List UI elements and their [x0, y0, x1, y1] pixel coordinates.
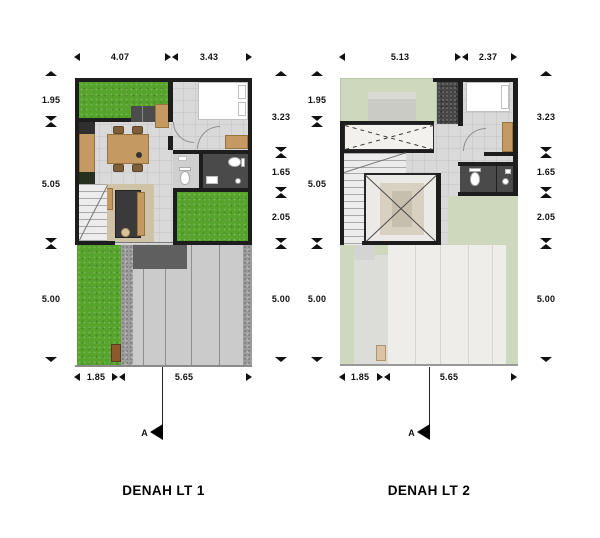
lt2-void-strip — [344, 124, 434, 150]
section-line — [429, 367, 430, 432]
plan1-title: DENAH LT 1 — [75, 483, 252, 498]
lt1-fridge — [79, 122, 95, 134]
lt1-dining-chair-3 — [113, 164, 124, 172]
lt1-wall-top — [75, 78, 252, 82]
dim-arrow-down-icon — [45, 357, 57, 362]
lt2-partition-wall — [458, 78, 463, 126]
dim-tick-icon — [540, 187, 552, 198]
dim-label: 5.05 — [36, 179, 66, 189]
lt1-wc-toilet — [180, 171, 190, 185]
lt1-yard-edge — [75, 365, 252, 367]
dim-label: 5.65 — [126, 372, 242, 382]
section-arrow-icon — [417, 424, 430, 440]
dim-tick-icon — [540, 238, 552, 249]
dim-arrow-up-icon — [540, 71, 552, 76]
lt2-ghost-pillow — [368, 92, 416, 99]
lt1-entry-mat — [131, 106, 155, 122]
dim-label: 3.23 — [531, 112, 561, 122]
dim-label: 1.95 — [36, 95, 66, 105]
lt1-bath-toilet-tank — [241, 158, 245, 167]
dim-label: 3.43 — [178, 52, 240, 62]
lt2-roof-joint — [492, 245, 493, 366]
dim-tick-icon — [311, 116, 323, 127]
dim-label: 5.13 — [350, 52, 450, 62]
lt2-gravel-wall — [437, 78, 458, 124]
lt2-roof-joint — [440, 245, 441, 366]
lt2-bath-toilet — [470, 172, 480, 186]
lt1-driveway-joint — [191, 245, 192, 365]
dim-arrow-up-icon — [275, 71, 287, 76]
lt1-dining-chair-4 — [132, 164, 143, 172]
lt1-driveway-joint — [219, 245, 220, 365]
floor-plan-sheet: 4.07 3.43 1.85 5.65 1.95 5.05 5.00 3.23 … — [0, 0, 600, 538]
lt2-wall-top — [433, 78, 518, 82]
dim-arrow-left-icon — [339, 53, 345, 61]
lt1-dining-chair-1 — [113, 126, 124, 134]
floor-plan-lt2 — [340, 78, 518, 367]
dim-arrow-down-icon — [311, 357, 323, 362]
dim-label: 2.05 — [266, 212, 296, 222]
lt2-bed-pillow — [501, 85, 509, 109]
dim-label: 1.65 — [531, 167, 561, 177]
dim-arrow-up-icon — [311, 71, 323, 76]
dim-label: 1.85 — [78, 372, 114, 382]
dim-tick-icon — [275, 187, 287, 198]
lt2-bath-divider — [496, 166, 497, 192]
dim-arrow-right-icon — [246, 53, 252, 61]
lt1-planter — [111, 344, 121, 362]
dim-label: 5.00 — [266, 294, 296, 304]
dim-tick-icon — [540, 147, 552, 158]
lt2-void-wall-right — [436, 173, 441, 246]
lt2-void-living — [364, 173, 438, 243]
dim-label: 2.05 — [531, 212, 561, 222]
lt1-dining-chair-2 — [132, 126, 143, 134]
dim-arrow-right-icon — [246, 373, 252, 381]
lt1-wc-sink — [178, 156, 187, 161]
dim-split-icon — [377, 373, 390, 381]
lt2-bath-shelf — [505, 169, 511, 174]
dim-label: 4.07 — [80, 52, 160, 62]
lt2-bath-drain — [502, 178, 509, 185]
dim-label: 1.95 — [302, 95, 332, 105]
lt2-roof-panels — [388, 245, 506, 366]
lt2-yard-green-right — [506, 245, 518, 366]
dim-arrow-right-icon — [511, 53, 517, 61]
section-arrow-icon — [150, 424, 163, 440]
lt1-pouf — [121, 228, 130, 237]
dim-label: 5.00 — [302, 294, 332, 304]
lt1-wardrobe — [225, 135, 248, 149]
lt2-stair-flight — [344, 173, 364, 245]
dim-label: 5.05 — [302, 179, 332, 189]
lt1-entry-door-split — [142, 106, 143, 122]
lt1-bed-pillow-2 — [238, 102, 246, 116]
dim-split-icon — [165, 53, 178, 61]
dim-label: 1.65 — [266, 167, 296, 177]
dim-arrow-up-icon — [45, 71, 57, 76]
lt1-porch — [133, 245, 187, 269]
lt2-yard-edge — [340, 364, 518, 366]
lt1-bath-shower-bench — [206, 176, 218, 184]
section-line — [162, 367, 163, 432]
lt1-teapot — [136, 152, 142, 158]
lt1-dining-table — [107, 134, 149, 164]
lt1-sliding-door — [115, 242, 173, 243]
lt1-gravel-strip-left — [121, 245, 133, 365]
dim-tick-icon — [275, 238, 287, 249]
dim-tick-icon — [311, 238, 323, 249]
dim-arrow-down-icon — [540, 357, 552, 362]
dim-tick-icon — [45, 238, 57, 249]
lt2-roof-garden-right — [448, 196, 518, 245]
lt2-porch-gray — [355, 245, 375, 260]
floor-plan-lt1 — [75, 78, 252, 367]
dim-arrow-right-icon — [511, 373, 517, 381]
lt2-ghost-gate — [376, 345, 386, 361]
dim-label: 1.85 — [342, 372, 378, 382]
lt1-bed-pillow-1 — [238, 85, 246, 99]
dim-arrow-down-icon — [275, 357, 287, 362]
dim-label: 2.37 — [466, 52, 510, 62]
dim-label: 5.00 — [531, 294, 561, 304]
lt1-wall-left — [75, 78, 79, 245]
lt1-rear-garden — [177, 192, 248, 241]
lt2-roof-joint — [415, 245, 416, 366]
dim-label: 5.65 — [390, 372, 508, 382]
section-label: A — [397, 428, 415, 438]
lt1-sofa-frame — [137, 192, 145, 236]
lt1-partition-wall — [168, 78, 173, 122]
dim-tick-icon — [45, 116, 57, 127]
plan2-title: DENAH LT 2 — [340, 483, 518, 498]
dim-tick-icon — [275, 147, 287, 158]
section-label: A — [130, 428, 148, 438]
lt1-gravel-strip-right — [243, 245, 252, 365]
lt1-bath-drain — [235, 178, 241, 184]
lt1-partition-wall-lower — [168, 136, 173, 150]
lt2-wall-right — [513, 78, 518, 196]
lt2-wardrobe — [502, 122, 513, 152]
dim-label: 5.00 — [36, 294, 66, 304]
dim-label: 3.23 — [266, 112, 296, 122]
lt1-wall-right — [248, 78, 252, 245]
lt2-roof-joint — [468, 245, 469, 366]
lt1-bath-toilet — [228, 157, 241, 167]
dim-split-icon — [112, 373, 125, 381]
lt1-entry-cabinet — [155, 104, 169, 128]
